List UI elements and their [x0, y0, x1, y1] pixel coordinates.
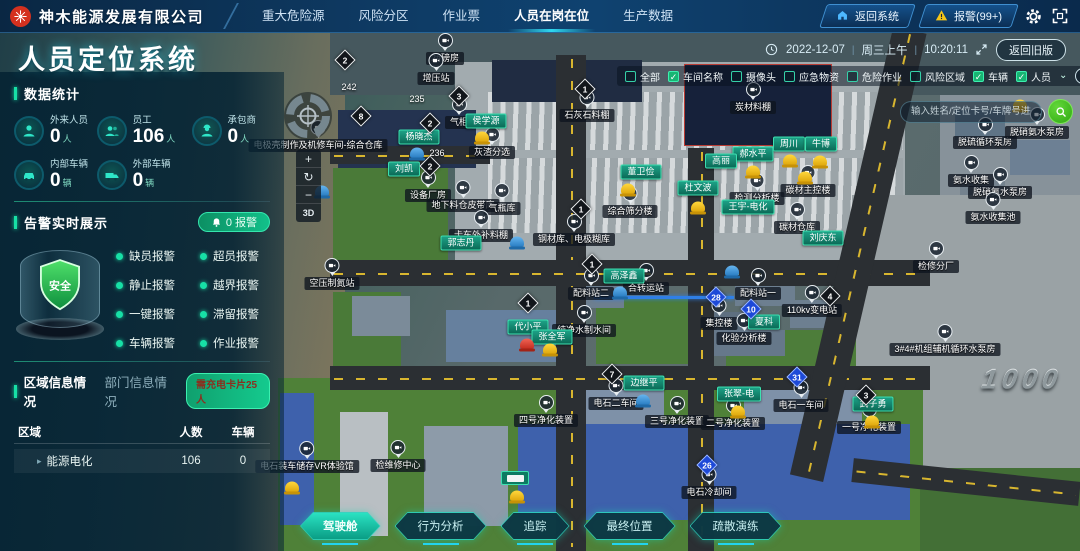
- helmet-dome: [813, 156, 827, 166]
- stat-unit: 人: [166, 134, 175, 144]
- nav-item-1[interactable]: 重大危险源: [260, 0, 327, 32]
- pin-stem: [543, 409, 549, 413]
- helmet-dome: [725, 266, 739, 276]
- tab-region-info[interactable]: 区域信息情况: [14, 372, 91, 410]
- pin-stem: [329, 272, 335, 276]
- person-tag[interactable]: 刘凯: [388, 162, 420, 177]
- person-tag[interactable]: 周川: [773, 137, 805, 152]
- helmet-brim: [284, 492, 300, 495]
- search-button[interactable]: [1048, 99, 1073, 124]
- building-name: 灰渣分选: [469, 146, 515, 159]
- building-name: 检修分厂: [913, 260, 959, 273]
- building-name: 电石一车间: [773, 399, 828, 412]
- checkbox-icon[interactable]: ✓: [1016, 71, 1027, 82]
- alarm-type-list: 缺员报警超员报警静止报警越界报警一键报警滞留报警车辆报警作业报警: [116, 248, 270, 351]
- helmet-brim: [612, 297, 628, 300]
- building-name: 空压制氮站: [304, 277, 359, 290]
- helmet-brim: [519, 349, 535, 352]
- stat-value-row: 0辆: [133, 171, 171, 191]
- checkbox-icon[interactable]: ✓: [668, 71, 679, 82]
- helmet-brim: [620, 194, 636, 197]
- building-name: 脱硝氨水泵房: [1005, 126, 1069, 139]
- filter-label: 摄像头: [746, 69, 776, 84]
- stat-value: 0: [133, 170, 144, 191]
- action-button-4[interactable]: 最终位置: [584, 512, 676, 540]
- fullscreen-icon[interactable]: [1052, 8, 1068, 24]
- worker-helmet-icon[interactable]: [782, 155, 798, 168]
- building-label[interactable]: 炭材料棚: [730, 82, 776, 114]
- camera-pin-icon: [789, 202, 804, 217]
- helmet-brim: [782, 165, 798, 168]
- clock-icon: [765, 43, 779, 57]
- cluster-count: 7: [606, 368, 619, 381]
- camera-pin-icon: [669, 396, 684, 411]
- pin-stem: [581, 319, 587, 323]
- weekday-label: 周三上午: [861, 42, 907, 58]
- building-name: 3#4#机组辅机循环水泵房: [889, 343, 1000, 356]
- cluster-count: 10: [745, 303, 758, 316]
- camera-pin-icon: [992, 167, 1007, 182]
- alarm-count-text: 0 报警: [226, 214, 257, 230]
- tab-department-info[interactable]: 部门信息情况: [105, 372, 173, 410]
- building-name: 电石冷却间: [681, 486, 736, 499]
- col-people: 人数: [162, 424, 220, 440]
- stat-card-3: 承包商0人: [192, 115, 270, 147]
- nav-item-4[interactable]: 人员在岗在位: [512, 0, 591, 32]
- cluster-count: 1: [579, 83, 592, 96]
- camera-pin-icon: [473, 210, 488, 225]
- camera-pin-icon: [455, 180, 470, 195]
- search-input[interactable]: [900, 101, 1042, 123]
- alarm-section-header: 告警实时展示 0 报警: [14, 212, 270, 232]
- warning-icon: [935, 9, 949, 23]
- filter-1[interactable]: 全部: [625, 69, 660, 84]
- back-old-version-button[interactable]: 返回旧版: [996, 39, 1066, 61]
- worker-helmet-icon[interactable]: [409, 148, 425, 161]
- alarm-type-8: 作业报警: [200, 335, 270, 351]
- building-name: 四号净化装置: [514, 414, 578, 427]
- cluster-count: 3: [453, 90, 466, 103]
- table-row[interactable]: ▸能源电化1060: [14, 449, 270, 473]
- person-tag[interactable]: 郝水平: [732, 147, 773, 162]
- helmet-dome: [285, 482, 299, 492]
- contractor-icon: [192, 116, 222, 146]
- helmet-brim: [409, 158, 425, 161]
- action-button-frame: 驾驶舱: [300, 512, 381, 540]
- building-name: 钢材库、电极糊库: [533, 233, 615, 246]
- stat-value: 0: [228, 126, 239, 147]
- building-label[interactable]: 检修分厂: [913, 241, 959, 273]
- stat-card-1: 外来人员0人: [14, 115, 97, 147]
- stat-card-5: 外部车辆0辆: [97, 159, 192, 191]
- building-label[interactable]: 空压制氮站: [304, 258, 359, 290]
- filter-label: 应急物资: [799, 69, 839, 84]
- pin-stem: [754, 187, 760, 191]
- building-label[interactable]: 3#4#机组辅机循环水泵房: [889, 324, 1000, 356]
- person-tag[interactable]: 张全军: [531, 330, 572, 345]
- stat-unit: 人: [240, 134, 249, 144]
- alarm-type-label: 一键报警: [129, 306, 175, 322]
- dot-icon: [200, 311, 207, 318]
- helmet-brim: [509, 247, 525, 250]
- person-tag[interactable]: 高泽鑫: [603, 269, 644, 284]
- person-tag[interactable]: 高丽: [705, 154, 737, 169]
- pin-stem: [798, 394, 804, 398]
- worker-helmet-icon[interactable]: [635, 395, 651, 408]
- cluster-count: 8: [355, 110, 368, 123]
- section-accent-bar: [14, 385, 17, 398]
- person-tag[interactable]: 王宇-电化: [722, 200, 775, 215]
- helmet-dome: [798, 172, 812, 182]
- stat-value: 0: [50, 170, 61, 191]
- chevron-down-icon[interactable]: ⌄: [1059, 71, 1067, 81]
- cluster-count: 4: [824, 290, 837, 303]
- alarm-type-5: 一键报警: [116, 306, 186, 322]
- nav-item-5[interactable]: 生产数据: [621, 0, 675, 32]
- building-name: 石灰石料棚: [559, 109, 614, 122]
- stat-info: 员工106人: [133, 115, 176, 147]
- stat-info: 承包商0人: [228, 115, 257, 147]
- building-label[interactable]: 增压站: [417, 53, 454, 85]
- bottom-action-bar: 驾驶舱行为分析追踪最终位置疏散演练: [300, 512, 782, 540]
- region-table: 区域人数车辆▸能源电化1060: [14, 420, 270, 473]
- cluster-count: 31: [791, 371, 804, 384]
- company-name: 神木能源发展有限公司: [39, 6, 204, 27]
- helmet-brim: [730, 416, 746, 419]
- worker-helmet-icon[interactable]: [724, 266, 740, 279]
- worker-helmet-icon[interactable]: [519, 339, 535, 352]
- building-name: 炭材料棚: [730, 101, 776, 114]
- worker-helmet-icon[interactable]: [542, 344, 558, 357]
- helmet-dome: [865, 416, 879, 426]
- region-tabs: 区域信息情况 部门信息情况 需充电卡片25人: [14, 372, 270, 410]
- building-label[interactable]: 检维修中心: [370, 440, 425, 472]
- zoom-in-button[interactable]: +: [296, 150, 321, 168]
- worker-helmet-icon[interactable]: [509, 491, 525, 504]
- camera-pin-icon: [494, 183, 509, 198]
- pin-stem: [942, 338, 948, 342]
- cluster-diamond-marker[interactable]: 2: [334, 49, 355, 70]
- worker-helmet-icon[interactable]: [864, 416, 880, 429]
- cluster-count: 1: [575, 203, 588, 216]
- worker-helmet-icon[interactable]: [509, 237, 525, 250]
- person-tag[interactable]: 郭志丹: [440, 236, 481, 251]
- left-panel: 数据统计 外来人员0人员工106人承包商0人内部车辆0辆外部车辆0辆 告警实时展…: [0, 72, 284, 551]
- filter-8[interactable]: ✓人员: [1016, 69, 1051, 84]
- action-button-1[interactable]: 驾驶舱: [300, 512, 381, 540]
- cluster-count: 28: [710, 291, 723, 304]
- divider: [14, 201, 270, 202]
- cell-vehicles: 0: [220, 455, 266, 467]
- safety-shield-graphic: 安全: [14, 242, 106, 342]
- stat-value-row: 0辆: [50, 171, 88, 191]
- stats-section-header: 数据统计: [14, 84, 270, 103]
- worker-helmet-icon[interactable]: [812, 156, 828, 169]
- charge-needed-badge[interactable]: 需充电卡片25人: [186, 373, 270, 409]
- checkbox-icon[interactable]: [784, 71, 795, 82]
- filter-6[interactable]: 风险区域: [910, 69, 965, 84]
- helmet-dome: [613, 287, 627, 297]
- building-name: 二号净化装置: [701, 417, 765, 430]
- table-header-row: 区域人数车辆: [14, 420, 270, 444]
- worker-helmet-icon[interactable]: [474, 132, 490, 145]
- worker-helmet-icon[interactable]: [612, 287, 628, 300]
- filter-label: 全部: [640, 69, 660, 84]
- settings-gear-icon[interactable]: [1025, 8, 1042, 25]
- person-tag[interactable]: 牛博: [805, 137, 837, 152]
- pin-stem: [456, 111, 462, 115]
- action-button-5[interactable]: 疏散演练: [690, 512, 782, 540]
- shield-label: 安全: [49, 278, 72, 292]
- stat-value-row: 0人: [50, 127, 88, 147]
- helmet-brim: [690, 212, 706, 215]
- action-button-frame: 疏散演练: [690, 512, 782, 540]
- person-tag[interactable]: 杨晓杰: [398, 130, 439, 145]
- compass-control[interactable]: [282, 90, 334, 147]
- region-name: 能源电化: [47, 453, 93, 469]
- worker-helmet-icon[interactable]: [284, 482, 300, 495]
- cluster-count: 1: [586, 258, 599, 271]
- stat-info: 外部车辆0辆: [133, 159, 171, 191]
- action-button-3[interactable]: 追踪: [501, 512, 570, 540]
- camera-pin-icon: [538, 395, 553, 410]
- dot-icon: [200, 282, 207, 289]
- pin-stem: [584, 104, 590, 108]
- checkbox-icon[interactable]: [910, 71, 921, 82]
- person-tag[interactable]: 董卫俭: [620, 165, 661, 180]
- pin-stem: [997, 181, 1003, 185]
- pin-stem: [478, 224, 484, 228]
- helmet-dome: [410, 148, 424, 158]
- bell-icon: [211, 217, 222, 228]
- stat-unit: 人: [63, 134, 72, 144]
- camera-pin-icon: [928, 241, 943, 256]
- stat-value-row: 0人: [228, 127, 257, 147]
- dot-icon: [116, 253, 123, 260]
- building-name: 碳材主控楼: [780, 184, 835, 197]
- pin-stem: [706, 481, 712, 485]
- checkbox-icon[interactable]: [625, 71, 636, 82]
- pin-stem: [741, 327, 747, 331]
- separator: [914, 44, 917, 56]
- cell-region: ▸能源电化: [18, 453, 162, 469]
- pin-stem: [794, 216, 800, 220]
- col-region: 区域: [18, 424, 162, 440]
- car-icon: [14, 160, 44, 190]
- alarm-type-label: 滞留报警: [213, 306, 259, 322]
- back-system-button[interactable]: 返回系统: [819, 4, 916, 28]
- alarm-button[interactable]: 报警(99+): [918, 4, 1019, 28]
- pin-stem: [982, 131, 988, 135]
- person-tag[interactable]: 杜文波: [677, 181, 718, 196]
- tab-label: 部门信息情况: [105, 372, 173, 410]
- cluster-count: 26: [701, 459, 714, 472]
- stat-unit: 辆: [63, 178, 72, 188]
- search-icon: [1055, 106, 1067, 118]
- building-label[interactable]: 电石一车间: [773, 380, 828, 412]
- cell-people: 106: [162, 455, 220, 467]
- camera-pin-icon: [750, 268, 765, 283]
- action-button-frame: 最终位置: [584, 512, 676, 540]
- filter-5[interactable]: 危险作业: [847, 69, 902, 84]
- helmet-dome: [746, 166, 760, 176]
- alarm-type-label: 超员报警: [213, 248, 259, 264]
- pin-stem: [499, 197, 505, 201]
- dot-icon: [116, 311, 123, 318]
- action-button-frame: 追踪: [501, 512, 570, 540]
- dot-icon: [116, 282, 123, 289]
- alarm-type-4: 越界报警: [200, 277, 270, 293]
- time-label: 10:20:11: [924, 44, 968, 56]
- helmet-dome: [691, 202, 705, 212]
- dot-icon: [200, 253, 207, 260]
- stat-info: 内部车辆0辆: [50, 159, 88, 191]
- alarm-type-3: 静止报警: [116, 277, 186, 293]
- separator: [852, 44, 855, 56]
- pin-stem: [627, 200, 633, 204]
- alarm-type-label: 车辆报警: [129, 335, 175, 351]
- worker-helmet-icon[interactable]: [690, 202, 706, 215]
- cluster-count: 2: [424, 117, 437, 130]
- collapse-bar-button[interactable]: ›: [1075, 68, 1080, 84]
- checkbox-icon[interactable]: ✓: [973, 71, 984, 82]
- cluster-diamond-marker[interactable]: 1: [517, 292, 538, 313]
- map-search: [900, 99, 1073, 124]
- person-tag[interactable]: 张翠-电: [717, 387, 761, 402]
- stat-value: 0: [50, 126, 61, 147]
- mode-3d-button[interactable]: 3D: [296, 204, 321, 222]
- alarm-type-label: 作业报警: [213, 335, 259, 351]
- section-accent-bar: [14, 87, 17, 100]
- helmet-dome: [510, 237, 524, 247]
- cluster-count: 1: [522, 297, 535, 310]
- camera-pin-icon: [324, 258, 339, 273]
- camera-pin-icon: [428, 53, 443, 68]
- expand-icon[interactable]: [975, 43, 989, 57]
- helmet-brim: [542, 354, 558, 357]
- alarm-body: 安全 缺员报警超员报警静止报警越界报警一键报警滞留报警车辆报警作业报警: [14, 242, 270, 351]
- col-vehicles: 车辆: [220, 424, 266, 440]
- person-tag[interactable]: 侯学源: [465, 114, 506, 129]
- alarm-type-6: 滞留报警: [200, 306, 270, 322]
- worker-helmet-icon[interactable]: [797, 172, 813, 185]
- building-label[interactable]: 氨水收集池: [965, 192, 1020, 224]
- helmet-brim: [724, 276, 740, 279]
- building-label[interactable]: 碳材仓库: [774, 202, 820, 234]
- map-zoom-controls: + ↻ − 3D: [296, 150, 321, 222]
- helmet-dome: [636, 395, 650, 405]
- action-button-label: 驾驶舱: [301, 513, 380, 539]
- helmet-brim: [474, 142, 490, 145]
- helmet-brim: [797, 182, 813, 185]
- building-label[interactable]: 钢材库、电极糊库: [533, 214, 615, 246]
- action-button-frame: 行为分析: [395, 512, 487, 540]
- filter-2[interactable]: ✓车间名称: [668, 69, 723, 84]
- filter-7[interactable]: ✓车辆: [973, 69, 1008, 84]
- building-label[interactable]: 四号净化装置: [514, 395, 578, 427]
- nav-item-3[interactable]: 作业票: [441, 0, 483, 32]
- helmet-brim: [864, 426, 880, 429]
- worker-helmet-icon[interactable]: [730, 406, 746, 419]
- alarm-type-label: 静止报警: [129, 277, 175, 293]
- cluster-count: 2: [339, 54, 352, 67]
- expand-caret-icon: ▸: [37, 456, 42, 467]
- helmet-dome: [543, 344, 557, 354]
- person-tag[interactable]: 边继平: [623, 376, 664, 391]
- stat-card-4: 内部车辆0辆: [14, 159, 97, 191]
- camera-pin-icon: [804, 285, 819, 300]
- stat-card-2: 员工106人: [97, 115, 192, 147]
- camera-pin-icon: [437, 33, 452, 48]
- alarm-type-1: 缺员报警: [116, 248, 186, 264]
- users-icon: [97, 116, 127, 146]
- personnel-positioning-app: 2#磅房增压站石灰石料棚炭材料棚气柜电极壳制作及机修车间-综合仓库灰渣分选设备厂…: [0, 0, 1080, 551]
- alarm-type-label: 缺员报警: [129, 248, 175, 264]
- tab-label: 区域信息情况: [24, 372, 91, 410]
- dot-icon: [200, 340, 207, 347]
- helmet-brim: [812, 166, 828, 169]
- filter-label: 风险区域: [925, 69, 965, 84]
- stat-info: 外来人员0人: [50, 115, 88, 147]
- pin-stem: [755, 282, 761, 286]
- filter-label: 危险作业: [862, 69, 902, 84]
- plate-face: [507, 475, 524, 482]
- pin-stem: [460, 194, 466, 198]
- action-button-label: 疏散演练: [691, 513, 781, 539]
- helmet-dome: [475, 132, 489, 142]
- action-button-label: 行为分析: [396, 513, 486, 539]
- filter-4[interactable]: 应急物资: [784, 69, 839, 84]
- building-name: 合转运站: [623, 282, 669, 295]
- building-label[interactable]: 配料站一: [735, 268, 781, 300]
- checkbox-icon[interactable]: [847, 71, 858, 82]
- page-title: 人员定位系统: [18, 38, 198, 77]
- filter-3[interactable]: 摄像头: [731, 69, 776, 84]
- worker-helmet-icon[interactable]: [620, 184, 636, 197]
- building-name: 检维修中心: [370, 459, 425, 472]
- helmet-dome: [621, 184, 635, 194]
- checkbox-icon[interactable]: [731, 71, 742, 82]
- header-divider: [223, 3, 239, 29]
- camera-pin-icon: [938, 324, 953, 339]
- pin-stem: [809, 299, 815, 303]
- building-name: 化验分析楼: [716, 332, 771, 345]
- zoom-out-button[interactable]: −: [296, 186, 321, 204]
- building-name: 综合筛分楼: [602, 205, 657, 218]
- action-button-2[interactable]: 行为分析: [395, 512, 487, 540]
- pin-stem: [613, 392, 619, 396]
- stat-value-row: 106人: [133, 127, 176, 147]
- reset-view-button[interactable]: ↻: [296, 168, 321, 186]
- worker-helmet-icon[interactable]: [745, 166, 761, 179]
- pin-stem: [750, 96, 756, 100]
- person-tag[interactable]: 刘庆东: [802, 231, 843, 246]
- helmet-dome: [510, 491, 524, 501]
- pin-stem: [933, 255, 939, 259]
- person-icon: [14, 116, 44, 146]
- alarm-count-badge[interactable]: 0 报警: [198, 212, 270, 232]
- pin-stem: [442, 47, 448, 51]
- building-name: 氨水收集池: [965, 211, 1020, 224]
- vehicle-plate-tag[interactable]: [501, 471, 529, 485]
- camera-pin-icon: [299, 441, 314, 456]
- helmet-brim: [635, 405, 651, 408]
- nav-item-2[interactable]: 风险分区: [357, 0, 411, 32]
- pin-stem: [990, 206, 996, 210]
- filter-label: 车辆: [988, 69, 1008, 84]
- building-label[interactable]: 三号净化装置: [645, 396, 709, 428]
- helmet-brim: [745, 176, 761, 179]
